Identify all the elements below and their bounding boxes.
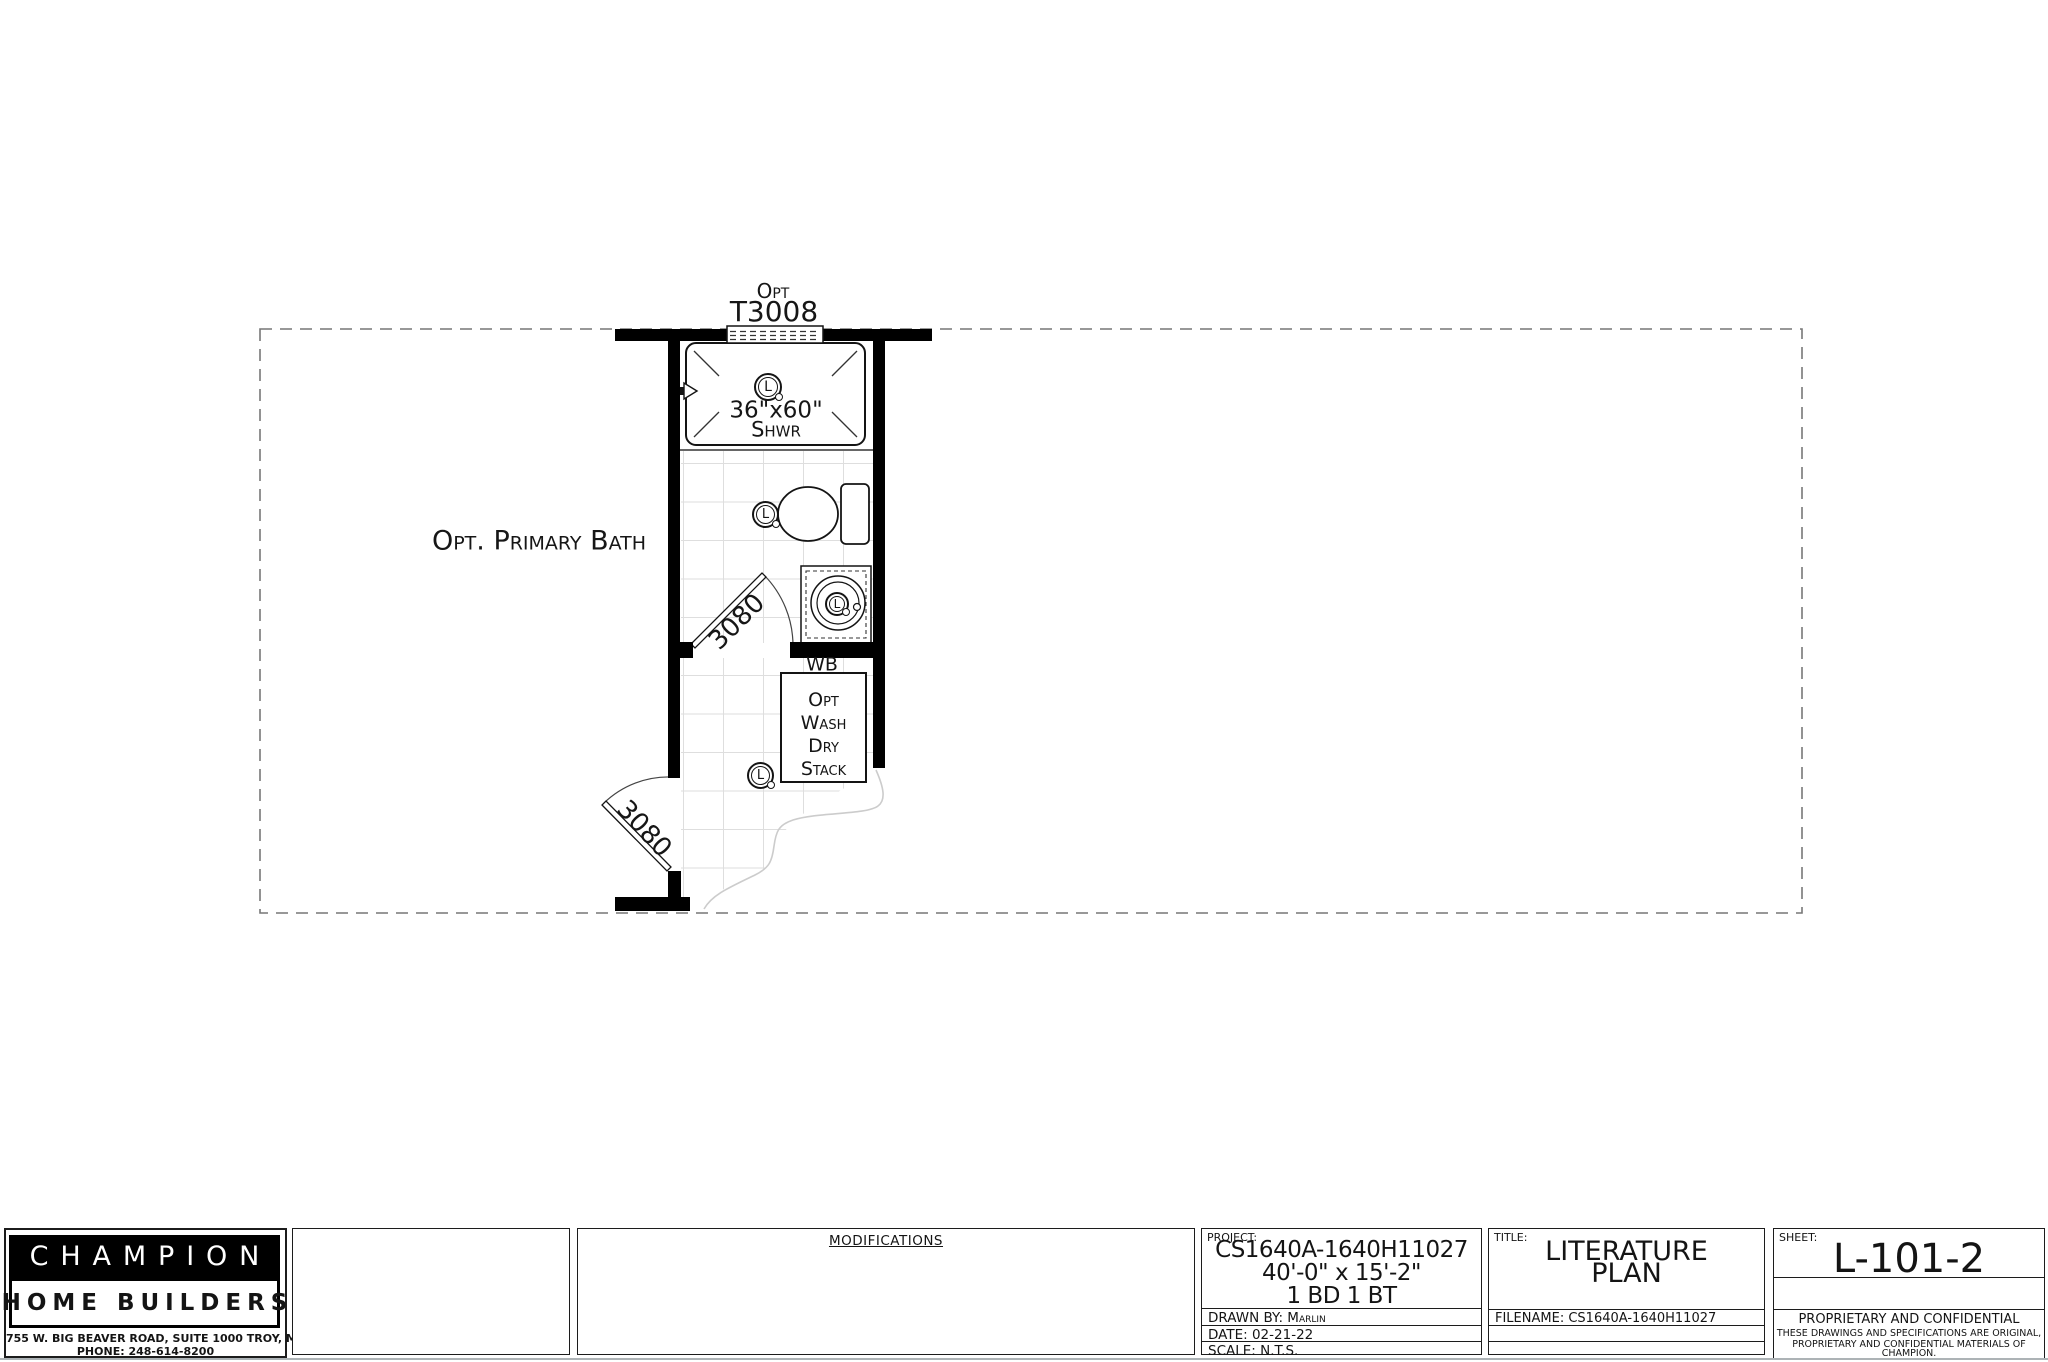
window-symbol — [727, 326, 823, 343]
drawing-title: LITERATURE PLAN — [1489, 1241, 1764, 1285]
room-label: Opt. Primary Bath — [432, 528, 646, 555]
modifications-panel: MODIFICATIONS — [577, 1228, 1195, 1355]
shower-abbr-label: Shwr — [751, 420, 801, 441]
project-dimensions: 40'-0" x 15'-2" — [1202, 1262, 1481, 1285]
divider — [1489, 1325, 1764, 1326]
spare-panel — [292, 1228, 570, 1355]
wall-segment — [873, 340, 885, 768]
divider — [1489, 1309, 1764, 1310]
confidentiality-note: PROPRIETARY AND CONFIDENTIAL THESE DRAWI… — [1774, 1313, 2044, 1362]
light-fixture-symbol-toilet: L — [752, 501, 779, 528]
sheet-panel: SHEET: L-101-2 PROPRIETARY AND CONFIDENT… — [1773, 1228, 2045, 1359]
drawn-by-row: DRAWN BY: Marlin — [1208, 1310, 1326, 1326]
fixture-letter: L — [762, 507, 769, 522]
drawn-by-value: Marlin — [1287, 1310, 1325, 1326]
washer-dryer-stack-box: Opt Wash Dry Stack — [780, 672, 867, 783]
divider — [1202, 1308, 1481, 1309]
wall-segment — [668, 642, 693, 658]
sheet-number: L-101-2 — [1774, 1236, 2044, 1282]
title-panel: TITLE: LITERATURE PLAN FILENAME: CS1640A… — [1488, 1228, 1765, 1355]
wall-segment — [668, 340, 680, 778]
fixture-dot — [842, 608, 850, 616]
drawing-title-line2: PLAN — [1489, 1263, 1764, 1285]
laundry-line: Stack — [782, 758, 865, 781]
sheet-edge-line — [0, 1358, 2048, 1360]
confidential-line: PROPRIETARY AND CONFIDENTIAL MATERIALS O… — [1774, 1340, 2044, 1359]
drawn-by-label: DRAWN BY: — [1208, 1310, 1283, 1326]
project-model: CS1640A-1640H11027 — [1202, 1239, 1481, 1262]
title-block: CHAMPION HOME BUILDERS 755 W. BIG BEAVER… — [0, 1225, 2048, 1362]
wall-segment — [668, 871, 681, 899]
divider — [1774, 1277, 2044, 1278]
floor-plan: L L L L Opt Wash Dry Stack Opt T3008 Opt… — [0, 0, 2048, 1225]
unit-boundary-dashed — [260, 329, 1802, 913]
fixture-letter: L — [764, 379, 772, 395]
wb-label: WB — [806, 656, 838, 675]
company-address-line: 755 W. BIG BEAVER ROAD, SUITE 1000 TROY,… — [6, 1333, 285, 1346]
company-logo-sub: HOME BUILDERS — [9, 1278, 280, 1328]
divider — [1202, 1325, 1481, 1326]
wall-segment — [615, 897, 690, 911]
divider — [1489, 1341, 1764, 1342]
wall-segment — [615, 329, 727, 341]
confidential-line: THESE DRAWINGS AND SPECIFICATIONS ARE OR… — [1774, 1329, 2044, 1339]
wall-segment — [823, 329, 932, 341]
project-panel: PROJECT: CS1640A-1640H11027 40'-0" x 15'… — [1201, 1228, 1482, 1355]
light-fixture-symbol-sink: L — [825, 592, 849, 616]
modifications-header: MODIFICATIONS — [578, 1233, 1194, 1249]
filename-row: FILENAME: CS1640A-1640H11027 — [1495, 1311, 1716, 1326]
scale-value: N.T.S. — [1260, 1343, 1298, 1359]
project-info: CS1640A-1640H11027 40'-0" x 15'-2" 1 BD … — [1202, 1239, 1481, 1308]
filename-value: CS1640A-1640H11027 — [1568, 1311, 1716, 1326]
flooring-transition-line — [704, 770, 883, 909]
window-model-label: T3008 — [730, 298, 818, 326]
drawing-sheet: L L L L Opt Wash Dry Stack Opt T3008 Opt… — [0, 0, 2048, 1362]
light-fixture-symbol-laundry: L — [747, 762, 774, 789]
scale-row: SCALE: N.T.S. — [1208, 1343, 1298, 1359]
laundry-line: Opt — [782, 689, 865, 712]
scale-label: SCALE: — [1208, 1343, 1256, 1359]
fixture-letter: L — [834, 597, 841, 611]
company-phone: PHONE: 248-614-8200 — [6, 1346, 285, 1359]
project-rooms: 1 BD 1 BT — [1202, 1285, 1481, 1308]
company-logo-panel: CHAMPION HOME BUILDERS 755 W. BIG BEAVER… — [4, 1228, 287, 1358]
laundry-line: Wash — [782, 712, 865, 735]
laundry-line: Dry — [782, 735, 865, 758]
plan-linework — [0, 0, 2048, 1225]
toilet-fixture — [778, 484, 869, 544]
divider — [1774, 1309, 2044, 1310]
filename-label: FILENAME: — [1495, 1311, 1564, 1326]
company-logo: CHAMPION — [9, 1235, 280, 1278]
fixture-letter: L — [757, 768, 764, 783]
fixture-dot — [767, 781, 775, 789]
fixture-dot — [772, 520, 780, 528]
confidential-title: PROPRIETARY AND CONFIDENTIAL — [1774, 1313, 2044, 1326]
company-address: 755 W. BIG BEAVER ROAD, SUITE 1000 TROY,… — [6, 1333, 285, 1358]
divider — [1202, 1341, 1481, 1342]
